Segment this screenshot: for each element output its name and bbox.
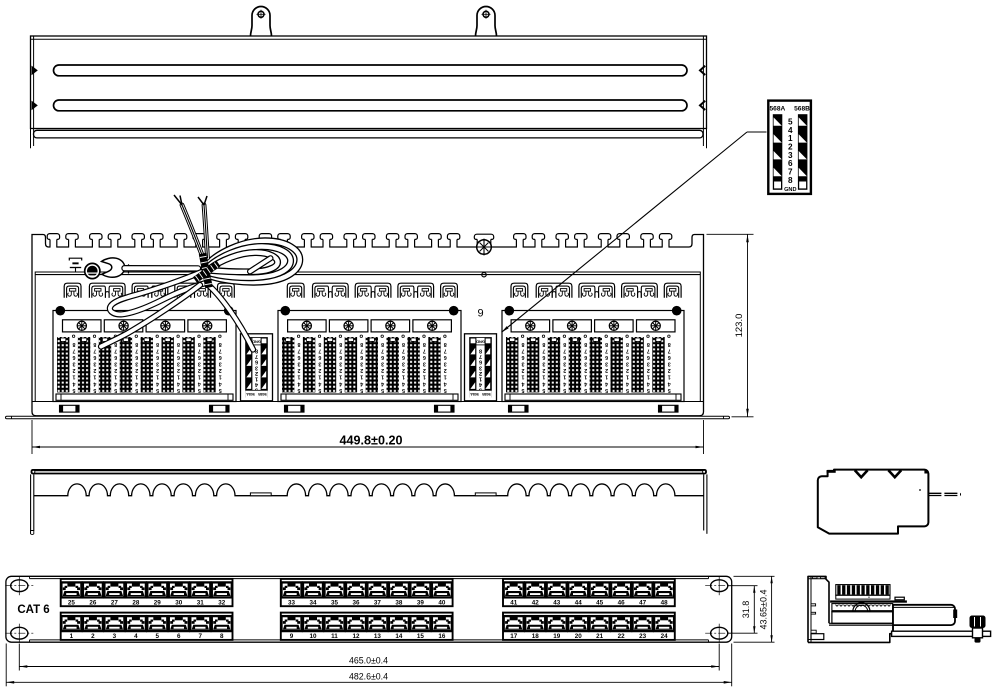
svg-text:8: 8 [360,341,363,347]
svg-text:2: 2 [381,367,384,373]
svg-text:36: 36 [352,599,360,606]
svg-text:4: 4 [522,380,525,386]
svg-text:8: 8 [444,341,447,347]
svg-text:38: 38 [395,599,403,606]
svg-text:8: 8 [626,341,629,347]
svg-text:28: 28 [132,599,140,606]
svg-text:8: 8 [156,341,159,347]
svg-text:4: 4 [444,380,447,386]
svg-text:2: 2 [647,367,650,373]
svg-text:1: 1 [156,374,159,380]
svg-text:7: 7 [668,347,671,353]
svg-text:6: 6 [339,354,342,360]
svg-text:3: 3 [255,364,258,370]
svg-text:4: 4 [381,380,384,386]
svg-text:8: 8 [318,341,321,347]
svg-text:568A: 568A [470,392,479,396]
svg-text:5: 5 [156,387,159,393]
svg-text:3: 3 [479,364,482,370]
svg-text:6: 6 [423,354,426,360]
svg-text:2: 2 [135,367,138,373]
svg-text:3: 3 [381,361,384,367]
svg-text:2: 2 [339,367,342,373]
svg-text:3: 3 [668,361,671,367]
svg-text:29: 29 [154,599,162,606]
svg-text:5: 5 [444,387,447,393]
svg-text:1: 1 [135,374,138,380]
svg-text:4: 4 [423,380,426,386]
svg-text:8: 8 [479,348,482,354]
svg-text:7: 7 [177,347,180,353]
svg-text:482.6±0.4: 482.6±0.4 [349,672,388,682]
svg-text:4: 4 [402,380,405,386]
svg-text:5: 5 [198,387,201,393]
svg-text:1: 1 [479,376,482,382]
svg-text:47: 47 [639,599,647,606]
svg-text:7: 7 [339,347,342,353]
svg-text:7: 7 [522,347,525,353]
svg-text:2: 2 [423,367,426,373]
svg-text:465.0±0.4: 465.0±0.4 [349,656,388,666]
svg-text:2: 2 [298,367,301,373]
svg-text:8: 8 [522,341,525,347]
svg-text:7: 7 [93,347,96,353]
svg-text:3: 3 [542,361,545,367]
svg-text:45: 45 [596,599,604,606]
svg-text:8: 8 [647,341,650,347]
svg-text:6: 6 [360,354,363,360]
svg-text:5: 5 [93,387,96,393]
svg-text:5: 5 [605,387,608,393]
svg-text:3: 3 [522,361,525,367]
svg-text:6: 6 [479,359,482,365]
svg-text:8: 8 [605,341,608,347]
svg-text:5: 5 [177,387,180,393]
svg-text:2: 2 [605,367,608,373]
svg-text:3: 3 [584,361,587,367]
svg-text:8: 8 [584,341,587,347]
svg-text:10: 10 [309,633,317,640]
svg-text:4: 4 [668,380,671,386]
svg-text:1: 1 [542,374,545,380]
svg-text:5: 5 [668,387,671,393]
svg-text:3: 3 [444,361,447,367]
svg-text:15: 15 [417,633,425,640]
svg-text:2: 2 [73,367,76,373]
svg-text:8: 8 [563,341,566,347]
svg-text:8: 8 [402,341,405,347]
svg-text:12: 12 [352,633,360,640]
svg-text:3: 3 [156,361,159,367]
svg-text:7: 7 [584,347,587,353]
svg-text:2: 2 [360,367,363,373]
svg-text:123.0: 123.0 [734,314,745,338]
svg-text:9: 9 [477,308,483,320]
svg-text:4: 4 [177,380,180,386]
svg-text:2: 2 [522,367,525,373]
svg-text:568B: 568B [258,392,267,396]
svg-text:4: 4 [219,380,222,386]
svg-text:6: 6 [93,354,96,360]
svg-text:1: 1 [563,374,566,380]
svg-text:7: 7 [647,347,650,353]
svg-text:5: 5 [298,387,301,393]
svg-text:1: 1 [198,374,201,380]
svg-text:2: 2 [318,367,321,373]
svg-text:8: 8 [220,633,224,640]
svg-text:4: 4 [298,380,301,386]
svg-text:48: 48 [661,599,669,606]
svg-text:9: 9 [290,633,294,640]
svg-text:568B: 568B [794,105,810,112]
svg-text:3: 3 [339,361,342,367]
svg-text:1: 1 [70,633,74,640]
svg-text:8: 8 [298,341,301,347]
svg-text:1: 1 [298,374,301,380]
svg-text:6: 6 [381,354,384,360]
svg-text:31.8: 31.8 [741,601,751,619]
svg-text:4: 4 [339,380,342,386]
svg-text:5: 5 [73,387,76,393]
svg-text:568B: 568B [482,392,491,396]
svg-text:7: 7 [255,353,258,359]
svg-text:1: 1 [318,374,321,380]
svg-text:7: 7 [402,347,405,353]
svg-text:21: 21 [596,633,604,640]
svg-text:4: 4 [198,380,201,386]
svg-text:8: 8 [135,341,138,347]
svg-text:3: 3 [626,361,629,367]
svg-text:7: 7 [73,347,76,353]
svg-text:4: 4 [360,380,363,386]
svg-text:3: 3 [114,361,117,367]
svg-text:6: 6 [114,354,117,360]
svg-text:43.65±0.4: 43.65±0.4 [758,590,768,630]
svg-text:3: 3 [605,361,608,367]
svg-text:4: 4 [134,633,138,640]
svg-text:22: 22 [618,633,626,640]
svg-text:46: 46 [618,599,626,606]
svg-text:5: 5 [219,387,222,393]
svg-text:7: 7 [198,347,201,353]
svg-text:3: 3 [647,361,650,367]
svg-text:3: 3 [177,361,180,367]
svg-text:5: 5 [522,387,525,393]
svg-text:1: 1 [605,374,608,380]
svg-text:6: 6 [522,354,525,360]
svg-text:4: 4 [647,380,650,386]
svg-text:32: 32 [218,599,226,606]
svg-text:7: 7 [114,347,117,353]
svg-text:1: 1 [584,374,587,380]
svg-text:17: 17 [510,633,518,640]
svg-text:4: 4 [605,380,608,386]
svg-text:3: 3 [360,361,363,367]
svg-text:11: 11 [331,633,338,640]
svg-text:39: 39 [417,599,425,606]
svg-text:2: 2 [219,367,222,373]
svg-text:16: 16 [438,633,446,640]
svg-text:1: 1 [339,374,342,380]
svg-text:6: 6 [298,354,301,360]
svg-text:6: 6 [542,354,545,360]
svg-text:2: 2 [563,367,566,373]
svg-text:5: 5 [339,387,342,393]
svg-text:GND: GND [784,187,796,193]
svg-text:2: 2 [542,367,545,373]
svg-text:6: 6 [177,354,180,360]
svg-text:7: 7 [199,633,203,640]
svg-text:6: 6 [255,359,258,365]
svg-text:4: 4 [135,380,138,386]
svg-text:3: 3 [113,633,117,640]
svg-text:GND: GND [476,339,485,344]
svg-text:6: 6 [563,354,566,360]
svg-text:31: 31 [197,599,205,606]
svg-text:5: 5 [360,387,363,393]
svg-text:5: 5 [402,387,405,393]
svg-text:2: 2 [626,367,629,373]
svg-text:1: 1 [219,374,222,380]
svg-text:6: 6 [626,354,629,360]
svg-text:1: 1 [423,374,426,380]
svg-text:1: 1 [93,374,96,380]
svg-text:25: 25 [68,599,76,606]
svg-text:4: 4 [93,380,96,386]
svg-text:43: 43 [553,599,561,606]
svg-text:1: 1 [647,374,650,380]
svg-text:4: 4 [626,380,629,386]
svg-text:8: 8 [668,341,671,347]
svg-text:6: 6 [402,354,405,360]
svg-text:6: 6 [584,354,587,360]
svg-text:6: 6 [135,354,138,360]
svg-text:2: 2 [479,370,482,376]
svg-text:6: 6 [647,354,650,360]
svg-text:4: 4 [156,380,159,386]
svg-text:3: 3 [318,361,321,367]
svg-text:5: 5 [563,387,566,393]
svg-text:7: 7 [381,347,384,353]
svg-text:2: 2 [444,367,447,373]
svg-text:6: 6 [668,354,671,360]
svg-text:3: 3 [73,361,76,367]
svg-text:7: 7 [479,353,482,359]
svg-text:18: 18 [532,633,540,640]
svg-text:24: 24 [661,633,669,640]
svg-text:2: 2 [584,367,587,373]
svg-text:5: 5 [542,387,545,393]
svg-text:7: 7 [135,347,138,353]
svg-text:6: 6 [198,354,201,360]
svg-text:3: 3 [219,361,222,367]
svg-text:5: 5 [626,387,629,393]
svg-text:6: 6 [177,633,181,640]
svg-text:23: 23 [639,633,647,640]
svg-text:449.8±0.20: 449.8±0.20 [340,433,403,447]
svg-text:7: 7 [605,347,608,353]
svg-text:3: 3 [198,361,201,367]
svg-text:5: 5 [156,633,160,640]
svg-text:8: 8 [93,341,96,347]
svg-text:6: 6 [73,354,76,360]
svg-text:7: 7 [542,347,545,353]
svg-text:7: 7 [444,347,447,353]
svg-text:1: 1 [626,374,629,380]
svg-text:37: 37 [374,599,382,606]
svg-text:1: 1 [73,374,76,380]
svg-text:5: 5 [135,387,138,393]
svg-text:20: 20 [575,633,583,640]
svg-text:3: 3 [423,361,426,367]
svg-text:1: 1 [668,374,671,380]
svg-text:6: 6 [318,354,321,360]
svg-text:2: 2 [198,367,201,373]
svg-text:19: 19 [553,633,561,640]
svg-text:3: 3 [563,361,566,367]
svg-text:3: 3 [298,361,301,367]
svg-text:26: 26 [89,599,97,606]
svg-text:7: 7 [318,347,321,353]
svg-text:3: 3 [402,361,405,367]
svg-text:44: 44 [575,599,583,606]
svg-text:6: 6 [444,354,447,360]
svg-text:4: 4 [542,380,545,386]
svg-text:1: 1 [402,374,405,380]
svg-text:7: 7 [298,347,301,353]
svg-text:1: 1 [381,374,384,380]
svg-text:3: 3 [93,361,96,367]
svg-text:4: 4 [318,380,321,386]
svg-text:4: 4 [73,380,76,386]
svg-text:5: 5 [423,387,426,393]
svg-text:41: 41 [510,599,518,606]
svg-text:42: 42 [532,599,540,606]
svg-text:33: 33 [288,599,296,606]
svg-text:5: 5 [584,387,587,393]
svg-text:4: 4 [584,380,587,386]
svg-text:34: 34 [309,599,317,606]
svg-text:568A: 568A [246,392,255,396]
svg-text:2: 2 [402,367,405,373]
svg-text:7: 7 [360,347,363,353]
svg-text:8: 8 [339,341,342,347]
svg-text:1: 1 [360,374,363,380]
svg-text:13: 13 [374,633,382,640]
svg-text:8: 8 [177,341,180,347]
svg-text:7: 7 [626,347,629,353]
svg-text:5: 5 [318,387,321,393]
svg-text:5: 5 [381,387,384,393]
svg-text:2: 2 [177,367,180,373]
svg-text:1: 1 [444,374,447,380]
svg-text:35: 35 [331,599,339,606]
svg-text:1: 1 [522,374,525,380]
svg-text:27: 27 [111,599,119,606]
svg-text:1: 1 [255,376,258,382]
svg-text:8: 8 [73,341,76,347]
svg-text:7: 7 [219,347,222,353]
svg-text:30: 30 [175,599,183,606]
svg-text:1: 1 [177,374,180,380]
svg-text:3: 3 [135,361,138,367]
svg-text:2: 2 [255,370,258,376]
svg-text:5: 5 [647,387,650,393]
svg-text:8: 8 [381,341,384,347]
svg-text:2: 2 [91,633,95,640]
svg-text:568A: 568A [770,105,786,112]
svg-text:5: 5 [114,387,117,393]
svg-text:6: 6 [605,354,608,360]
svg-text:4: 4 [114,380,117,386]
svg-text:8: 8 [219,341,222,347]
svg-text:14: 14 [395,633,403,640]
svg-text:8: 8 [198,341,201,347]
svg-text:40: 40 [438,599,446,606]
svg-text:4: 4 [563,380,566,386]
svg-text:2: 2 [114,367,117,373]
svg-text:CAT 6: CAT 6 [17,604,49,616]
svg-text:6: 6 [156,354,159,360]
svg-text:8: 8 [542,341,545,347]
svg-text:7: 7 [423,347,426,353]
svg-text:2: 2 [93,367,96,373]
svg-text:7: 7 [156,347,159,353]
svg-text:8: 8 [788,176,793,185]
svg-text:7: 7 [563,347,566,353]
svg-text:8: 8 [423,341,426,347]
svg-text:1: 1 [114,374,117,380]
svg-text:6: 6 [219,354,222,360]
svg-text:2: 2 [156,367,159,373]
svg-text:2: 2 [668,367,671,373]
